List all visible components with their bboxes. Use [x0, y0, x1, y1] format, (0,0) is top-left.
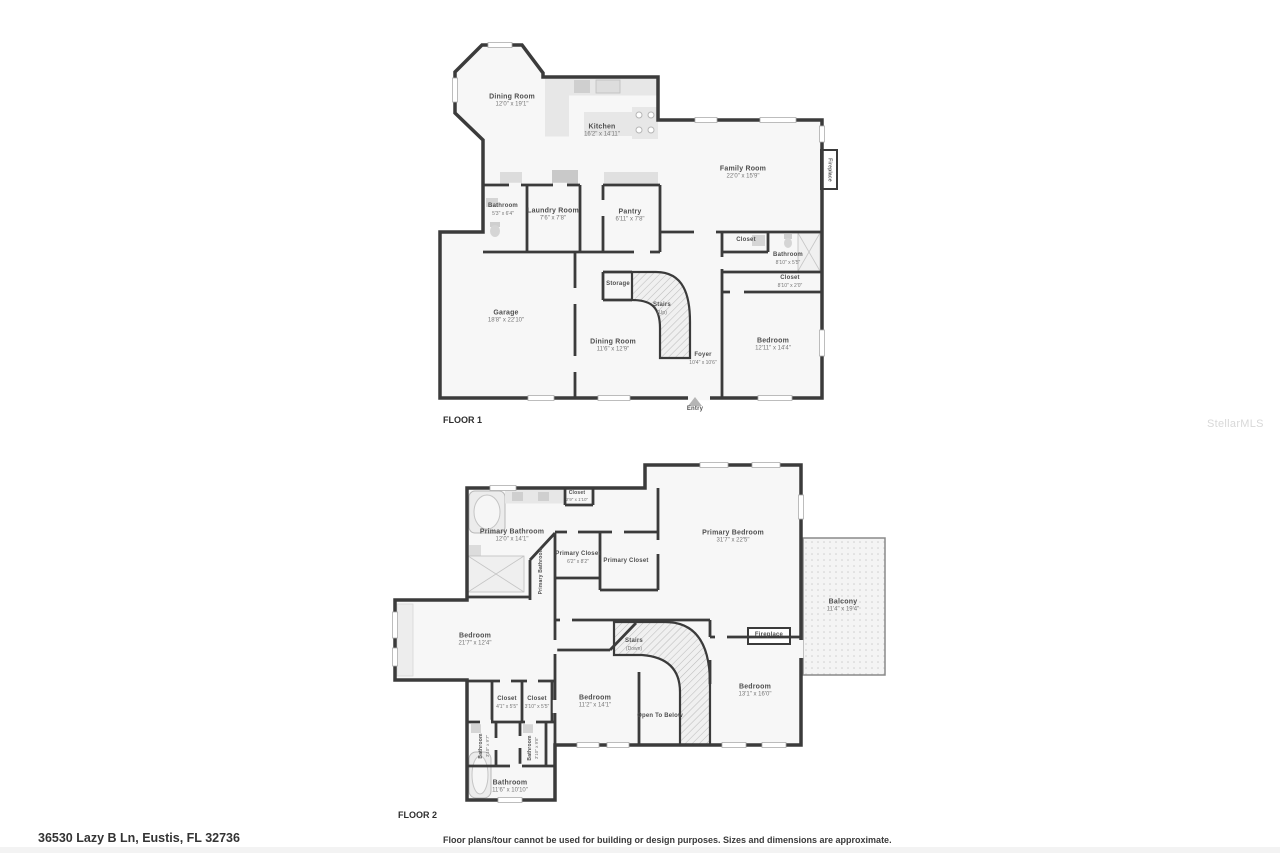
room-label-stairs-up: Stairs (Up) [653, 302, 671, 316]
room-label-bedroom-left: Bedroom 21'7" x 12'4" [459, 632, 492, 649]
room-label-bathroom-hall: Bathroom 8'10" x 5'5" [773, 252, 803, 266]
room-label-bathroom-vert-1: Bathroom 3'10" x 9'7" [478, 733, 490, 758]
room-label-primary-closet-2: Primary Closet [603, 558, 648, 566]
room-label-foyer: Foyer 10'4" x 10'6" [689, 352, 716, 366]
room-label-open-to-below: Open To Below [637, 713, 683, 721]
room-label-bathroom-bottom: Bathroom 11'6" x 10'10" [492, 779, 528, 796]
floor1-title: FLOOR 1 [443, 415, 482, 425]
room-label-entry: Entry [687, 406, 703, 414]
room-label-bathroom-1: Bathroom 5'3" x 6'4" [488, 203, 518, 217]
room-label-dining-room-bay: Dining Room 12'0" x 19'1" [489, 93, 535, 110]
room-label-closet-1: Closet 4'1" x 5'5" [496, 696, 518, 710]
room-label-garage: Garage 18'8" x 22'10" [488, 309, 524, 326]
room-label-closet-2: Closet 3'10" x 5'5" [525, 696, 550, 710]
room-label-storage: Storage [606, 281, 630, 289]
bedroom-left-closet-strip [397, 604, 413, 676]
room-label-primary-bedroom: Primary Bedroom 31'7" x 22'5" [702, 529, 764, 546]
stellar-mls-watermark: StellarMLS [1207, 418, 1264, 430]
floor-plan-page: Dining Room 12'0" x 19'1" Kitchen 16'2" … [0, 0, 1280, 853]
bottom-strip [0, 847, 1280, 853]
room-label-balcony: Balcony 11'4" x 19'4" [827, 598, 859, 615]
floor2-footprint [395, 465, 801, 800]
room-label-kitchen: Kitchen 16'2" x 14'11" [584, 123, 620, 140]
room-label-stairs-down: Stairs (Down) [625, 638, 643, 652]
room-label-pantry: Pantry 6'11" x 7'8" [615, 208, 644, 225]
room-label-dining-room-2: Dining Room 11'6" x 12'9" [590, 338, 636, 355]
property-address: 36530 Lazy B Ln, Eustis, FL 32736 [38, 831, 240, 845]
room-label-bedroom-f1: Bedroom 12'11" x 14'4" [755, 337, 791, 354]
room-label-closet-top: Closet 2'9" x 1'10" [566, 490, 588, 502]
footer-disclaimer: Floor plans/tour cannot be used for buil… [443, 835, 892, 845]
floorplan-canvas [0, 0, 1280, 853]
room-label-bathroom-vert-2: Bathroom 3'10" x 9'8" [527, 735, 539, 760]
room-label-primary-bathroom: Primary Bathroom 12'0" x 14'1" [480, 528, 544, 545]
room-label-bedroom-right: Bedroom 13'1" x 16'0" [739, 683, 772, 700]
room-label-closet-hall: Closet [736, 237, 756, 245]
room-label-laundry-room: Laundry Room 7'6" x 7'8" [527, 207, 579, 224]
room-label-primary-closet-1: Primary Closet 6'2" x 8'2" [555, 551, 600, 565]
room-label-bedroom-mid: Bedroom 11'2" x 14'1" [579, 694, 611, 711]
room-label-fireplace-f2: Fireplace [755, 632, 783, 640]
room-label-primary-bathroom-vert: Primary Bathroom [538, 548, 545, 595]
floor2-title: FLOOR 2 [398, 810, 437, 820]
room-label-closet-hall-2: Closet 8'10" x 2'0" [778, 275, 803, 289]
room-label-family-room: Family Room 22'0" x 15'9" [720, 165, 766, 182]
room-label-fireplace-f1: Fireplace [826, 158, 833, 182]
